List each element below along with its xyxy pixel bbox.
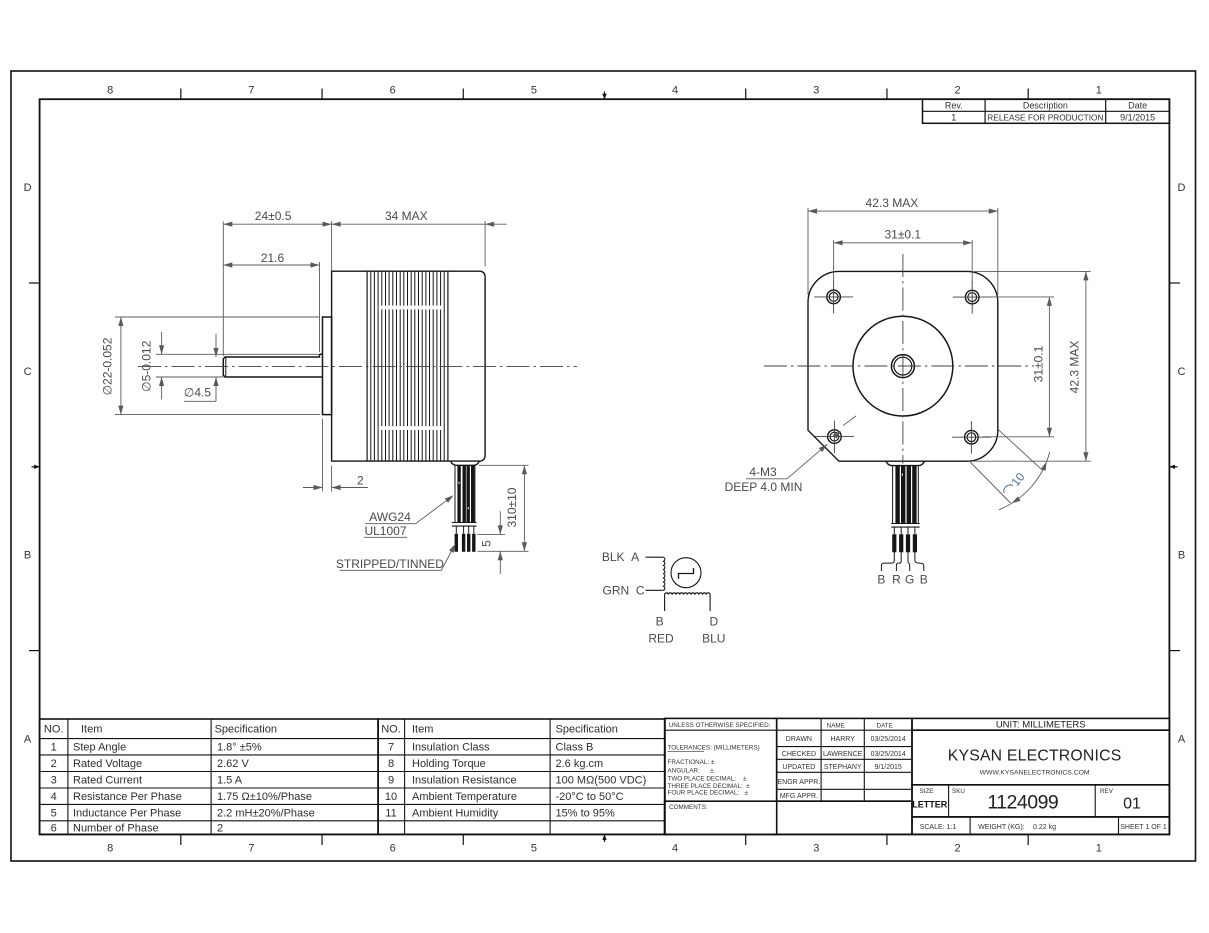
svg-text:RELEASE FOR PRODUCTION: RELEASE FOR PRODUCTION <box>987 112 1103 122</box>
svg-text:2.2 mH±20%/Phase: 2.2 mH±20%/Phase <box>217 807 315 819</box>
svg-text:2.6 kg.cm: 2.6 kg.cm <box>556 758 604 770</box>
svg-text:Holding Torque: Holding Torque <box>412 758 486 770</box>
svg-text:3: 3 <box>51 774 57 786</box>
svg-text:Step Angle: Step Angle <box>73 741 126 753</box>
svg-text:RED: RED <box>648 632 674 646</box>
svg-text:1: 1 <box>1096 843 1102 855</box>
svg-text:B: B <box>24 550 31 562</box>
svg-text:5: 5 <box>51 807 57 819</box>
svg-text:01: 01 <box>1123 796 1141 813</box>
svg-text:Class B: Class B <box>556 741 594 753</box>
svg-text:FOUR PLACE DECIMAL: ±: FOUR PLACE DECIMAL: ± <box>668 790 749 797</box>
svg-text:Insulation Class: Insulation Class <box>412 741 490 753</box>
svg-text:HARRY: HARRY <box>831 736 856 743</box>
svg-text:6: 6 <box>390 843 396 855</box>
svg-text:8: 8 <box>388 758 394 770</box>
svg-text:∅22-0.052: ∅22-0.052 <box>101 337 115 395</box>
svg-text:8: 8 <box>107 843 113 855</box>
svg-text:DEEP 4.0 MIN: DEEP 4.0 MIN <box>725 480 803 494</box>
svg-text:Inductance Per Phase: Inductance Per Phase <box>73 807 181 819</box>
svg-text:SIZE: SIZE <box>920 788 934 795</box>
svg-text:NO.: NO. <box>44 724 64 736</box>
svg-text:SCALE: 1:1: SCALE: 1:1 <box>920 824 957 831</box>
svg-text:2: 2 <box>955 843 961 855</box>
svg-text:UNIT: MILLIMETERS: UNIT: MILLIMETERS <box>996 719 1086 730</box>
svg-text:D: D <box>1178 182 1186 194</box>
svg-text:SHEET 1 OF 1: SHEET 1 OF 1 <box>1120 824 1167 831</box>
svg-text:FRACTIONAL: ±: FRACTIONAL: ± <box>668 759 715 766</box>
svg-text:Ambient Temperature: Ambient Temperature <box>412 791 517 803</box>
svg-text:Resistance Per Phase: Resistance Per Phase <box>73 791 182 803</box>
svg-text:11: 11 <box>385 807 396 819</box>
svg-text:4: 4 <box>51 791 57 803</box>
svg-text:1.8° ±5%: 1.8° ±5% <box>217 741 262 753</box>
svg-text:7: 7 <box>248 843 254 855</box>
svg-text:B: B <box>920 573 928 587</box>
svg-text:03/25/2014: 03/25/2014 <box>871 736 906 743</box>
svg-text:7: 7 <box>248 85 254 97</box>
svg-text:2: 2 <box>51 758 57 770</box>
svg-text:2: 2 <box>955 85 961 97</box>
svg-text:34 MAX: 34 MAX <box>385 209 428 223</box>
svg-text:21.6: 21.6 <box>261 251 285 265</box>
svg-text:A: A <box>24 734 32 746</box>
svg-text:GRN C: GRN C <box>603 584 645 598</box>
svg-text:ANGULAR: ±: ANGULAR: ± <box>668 767 715 774</box>
svg-text:5: 5 <box>531 85 537 97</box>
svg-text:ENGR APPR.: ENGR APPR. <box>778 779 821 786</box>
svg-text:3: 3 <box>813 85 819 97</box>
svg-text:AWG24: AWG24 <box>369 510 411 524</box>
svg-text:LAWRENCE: LAWRENCE <box>823 751 863 758</box>
svg-text:9/1/2015: 9/1/2015 <box>875 764 902 771</box>
svg-text:B: B <box>1178 550 1185 562</box>
svg-text:C: C <box>1178 366 1186 378</box>
svg-text:DRAWN: DRAWN <box>786 736 812 743</box>
svg-text:DATE: DATE <box>877 723 893 730</box>
svg-text:Rated Current: Rated Current <box>73 774 142 786</box>
svg-text:B: B <box>656 615 664 629</box>
svg-text:UL1007: UL1007 <box>364 524 406 538</box>
svg-text:MFG APPR.: MFG APPR. <box>780 793 818 800</box>
svg-text:Specification: Specification <box>556 724 618 736</box>
svg-text:∅5-0.012: ∅5-0.012 <box>140 340 154 391</box>
svg-text:G: G <box>905 573 914 587</box>
svg-text:3: 3 <box>813 843 819 855</box>
svg-text:2: 2 <box>357 474 364 488</box>
svg-text:UPDATED: UPDATED <box>782 764 815 771</box>
svg-text:TWO PLACE DECIMAL: ±: TWO PLACE DECIMAL: ± <box>668 775 748 782</box>
svg-text:Description: Description <box>1023 100 1068 110</box>
svg-text:15% to 95%: 15% to 95% <box>556 807 616 819</box>
svg-text:STEPHANY: STEPHANY <box>824 764 862 771</box>
svg-text:31±0.1: 31±0.1 <box>1032 345 1046 382</box>
svg-text:1: 1 <box>51 741 57 753</box>
svg-text:1: 1 <box>951 112 956 122</box>
svg-text:2: 2 <box>217 822 223 834</box>
svg-text:Specification: Specification <box>215 724 277 736</box>
svg-text:Rated Voltage: Rated Voltage <box>73 758 142 770</box>
svg-text:NO.: NO. <box>381 724 401 736</box>
svg-text:5: 5 <box>480 540 494 547</box>
svg-text:R: R <box>892 573 901 587</box>
svg-text:SKU: SKU <box>952 788 965 795</box>
svg-text:8: 8 <box>107 85 113 97</box>
svg-text:A: A <box>1178 734 1186 746</box>
svg-text:310±10: 310±10 <box>505 487 519 527</box>
svg-text:Rev.: Rev. <box>945 100 963 110</box>
svg-text:C: C <box>24 366 32 378</box>
svg-text:6: 6 <box>51 822 57 834</box>
svg-text:WEIGHT (KG):: WEIGHT (KG): <box>978 824 1025 831</box>
svg-text:1.5 A: 1.5 A <box>217 774 243 786</box>
svg-text:Date: Date <box>1128 100 1147 110</box>
svg-text:4: 4 <box>672 843 678 855</box>
svg-text:0.22 kg: 0.22 kg <box>1033 824 1056 831</box>
svg-text:9/1/2015: 9/1/2015 <box>1120 112 1155 122</box>
svg-text:6: 6 <box>390 85 396 97</box>
svg-text:4-M3: 4-M3 <box>749 465 777 479</box>
svg-text:BLK A: BLK A <box>602 550 639 564</box>
svg-text:Ambient Humidity: Ambient Humidity <box>412 807 499 819</box>
svg-text:LETTER: LETTER <box>912 800 947 810</box>
svg-text:24±0.5: 24±0.5 <box>255 209 292 223</box>
svg-text:NAME: NAME <box>827 723 845 730</box>
svg-text:42.3 MAX: 42.3 MAX <box>1068 341 1082 394</box>
svg-text:B: B <box>877 573 885 587</box>
svg-text:1: 1 <box>1096 85 1102 97</box>
svg-text:D: D <box>709 615 718 629</box>
svg-text:9: 9 <box>388 774 394 786</box>
svg-text:2.62 V: 2.62 V <box>217 758 249 770</box>
svg-text:03/25/2014: 03/25/2014 <box>871 751 906 758</box>
svg-text:BLU: BLU <box>702 632 725 646</box>
svg-text:REV: REV <box>1100 788 1114 795</box>
svg-text:Insulation Resistance: Insulation Resistance <box>412 774 517 786</box>
svg-text:7: 7 <box>388 741 394 753</box>
svg-text:D: D <box>24 182 32 194</box>
svg-text:Number of Phase: Number of Phase <box>73 822 159 834</box>
svg-text:4: 4 <box>672 85 678 97</box>
svg-text:UNLESS OTHERWISE SPECIFIED:: UNLESS OTHERWISE SPECIFIED: <box>669 722 771 729</box>
svg-text:TOLERANCES: (MILLIMETERS): TOLERANCES: (MILLIMETERS) <box>668 745 760 752</box>
svg-text:COMMENTS:: COMMENTS: <box>669 804 708 811</box>
svg-text:STRIPPED/TINNED: STRIPPED/TINNED <box>336 557 444 571</box>
svg-text:1.75 Ω±10%/Phase: 1.75 Ω±10%/Phase <box>217 791 312 803</box>
svg-text:Item: Item <box>81 724 102 736</box>
svg-text:1124099: 1124099 <box>987 792 1058 814</box>
svg-text:31±0.1: 31±0.1 <box>884 228 921 242</box>
svg-text:42.3 MAX: 42.3 MAX <box>866 196 919 210</box>
svg-text:5: 5 <box>531 843 537 855</box>
svg-text:-20°C to 50°C: -20°C to 50°C <box>556 791 624 803</box>
svg-text:∅4.5: ∅4.5 <box>184 386 211 400</box>
svg-text:WWW.KYSANELECTRONICS.COM: WWW.KYSANELECTRONICS.COM <box>980 770 1090 777</box>
svg-text:10: 10 <box>385 791 397 803</box>
svg-text:KYSAN ELECTRONICS: KYSAN ELECTRONICS <box>948 748 1122 765</box>
svg-text:100 MΩ(500 VDC): 100 MΩ(500 VDC) <box>556 774 647 786</box>
svg-text:Item: Item <box>412 724 433 736</box>
svg-text:CHECKED: CHECKED <box>782 751 816 758</box>
